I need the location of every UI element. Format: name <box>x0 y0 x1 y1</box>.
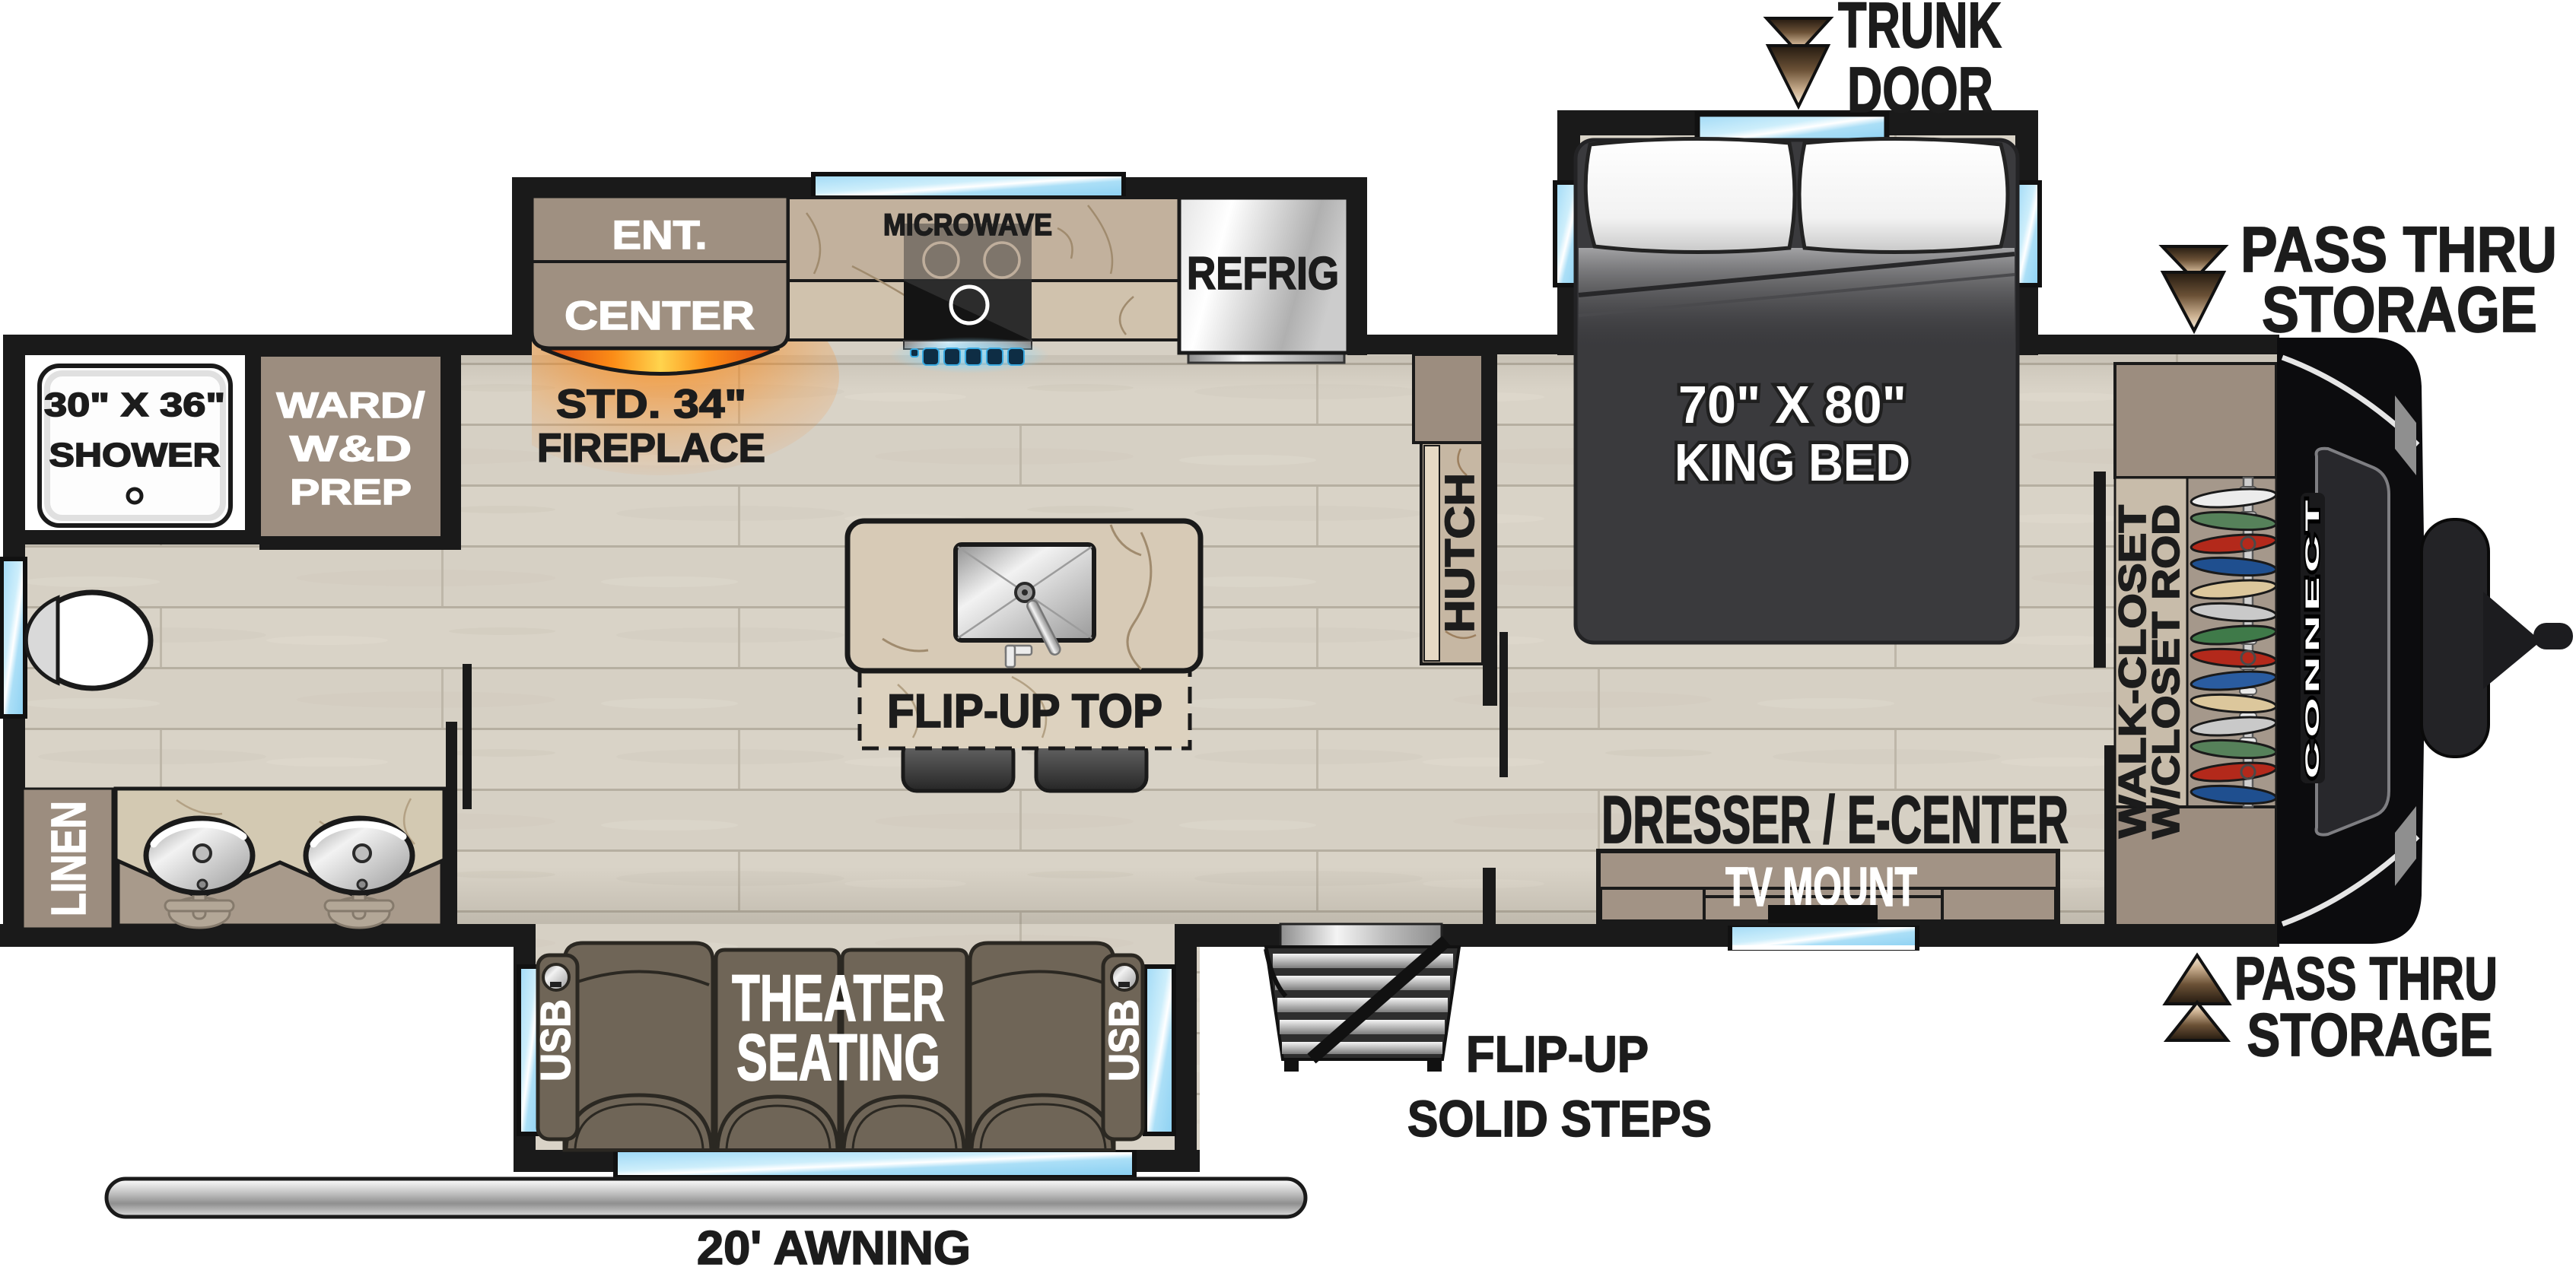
svg-text:WARD/: WARD/ <box>277 385 425 425</box>
svg-text:USB: USB <box>532 999 579 1081</box>
svg-text:SOLID STEPS: SOLID STEPS <box>1407 1091 1712 1148</box>
svg-text:PREP: PREP <box>290 472 412 512</box>
svg-text:KING BED: KING BED <box>1674 433 1910 492</box>
svg-text:HUTCH: HUTCH <box>1437 473 1483 633</box>
svg-text:TRUNK: TRUNK <box>1838 0 2002 61</box>
svg-text:30" X 36": 30" X 36" <box>44 386 225 424</box>
svg-text:SEATING: SEATING <box>736 1021 940 1094</box>
svg-text:LINEN: LINEN <box>41 801 96 916</box>
svg-text:DOOR: DOOR <box>1847 54 1993 125</box>
svg-text:70" X 80": 70" X 80" <box>1678 375 1907 434</box>
svg-text:FLIP-UP TOP: FLIP-UP TOP <box>887 685 1162 738</box>
svg-text:CONNECT: CONNECT <box>2302 496 2323 779</box>
svg-text:STORAGE: STORAGE <box>2262 274 2537 345</box>
svg-text:CENTER: CENTER <box>564 294 755 338</box>
svg-text:STD. 34": STD. 34" <box>556 382 746 427</box>
svg-text:20' AWNING: 20' AWNING <box>697 1222 971 1267</box>
svg-text:DRESSER / E-CENTER: DRESSER / E-CENTER <box>1601 782 2069 857</box>
svg-text:REFRIG: REFRIG <box>1187 248 1339 299</box>
svg-text:FLIP-UP: FLIP-UP <box>1466 1026 1649 1083</box>
svg-text:W/CLOSET ROD: W/CLOSET ROD <box>2145 504 2187 839</box>
svg-text:STORAGE: STORAGE <box>2247 1001 2493 1069</box>
svg-text:W&D: W&D <box>290 428 412 468</box>
svg-text:SHOWER: SHOWER <box>49 437 221 474</box>
svg-text:MICROWAVE: MICROWAVE <box>883 208 1052 242</box>
svg-text:USB: USB <box>1100 999 1147 1081</box>
svg-text:ENT.: ENT. <box>612 213 708 258</box>
svg-text:FIREPLACE: FIREPLACE <box>537 426 765 471</box>
